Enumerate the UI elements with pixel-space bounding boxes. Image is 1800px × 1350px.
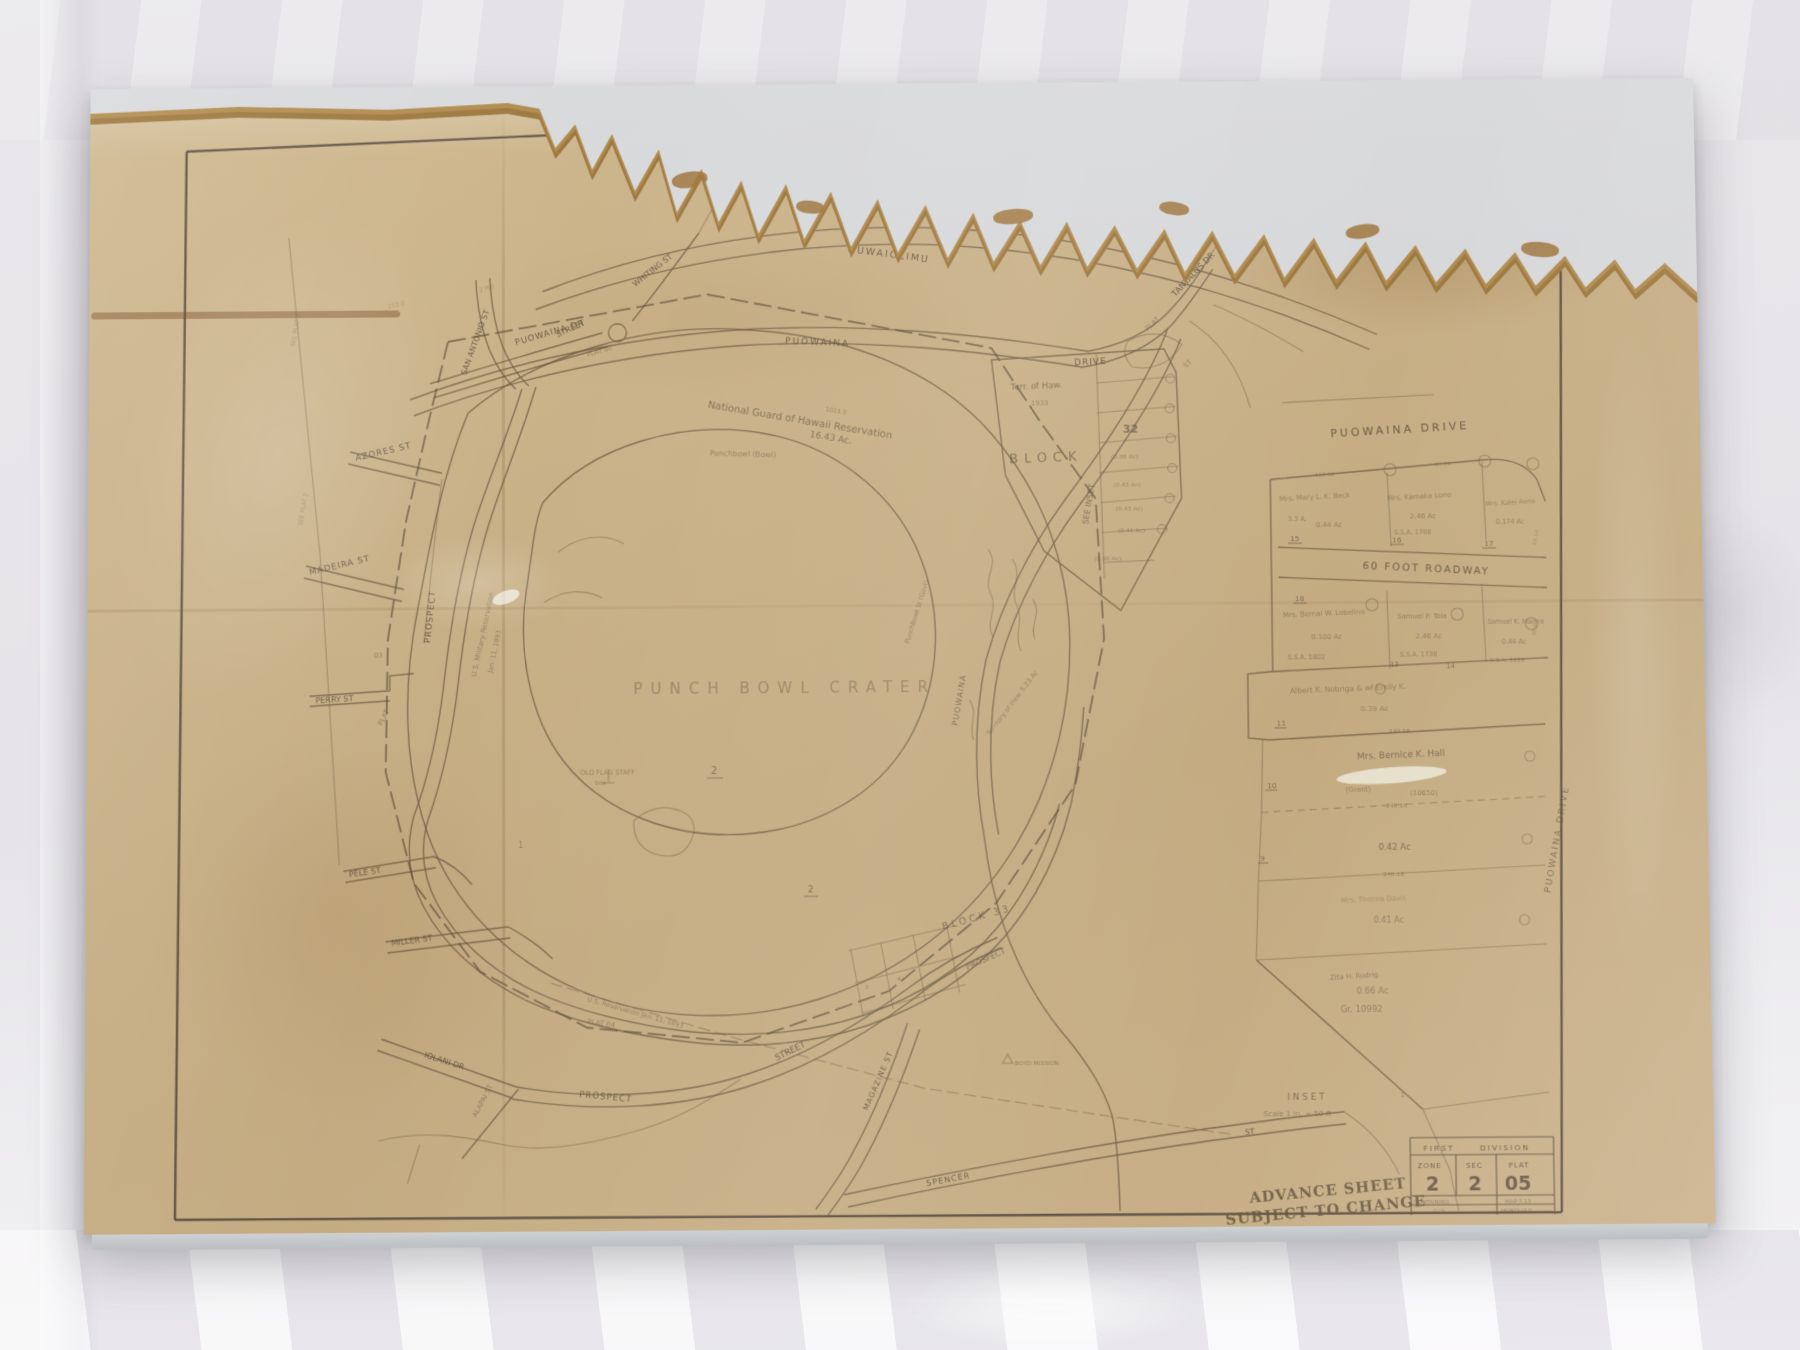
inset-p10-l3: (10650) [1410, 789, 1438, 797]
advance-sheet-stamp: ADVANCE SHEET SUBJECT TO CHANGE [1223, 1173, 1427, 1229]
street-label-drive: DRIVE [1074, 357, 1107, 368]
titleblock-sec-value: 2 [1468, 1173, 1482, 1196]
acreage-1: (0.38 Ac) [1111, 453, 1138, 460]
inset-p18-name: Mrs. Bernal W. Lobelino [1283, 608, 1365, 619]
inset-p14-l2: 0.44 Ac [1502, 638, 1527, 646]
parcel-num-3: 3 [865, 984, 869, 991]
inset-p16-l2: 2.46 Ac [1410, 512, 1437, 520]
white-correction-smudge [1336, 763, 1447, 788]
inset-p11-num: 11 [1276, 719, 1286, 728]
inset-p10-l2: (Grant) [1346, 785, 1372, 793]
inset-p16-name: Mrs. Kamaka Lono [1387, 491, 1451, 503]
inset-p14-l3: S.S.A. 1139 [1490, 657, 1525, 664]
margin-note-see-plat-2: SEE PLAT 2 [297, 492, 310, 526]
inset-p14-num: 14 [1446, 662, 1456, 670]
acreage-2: (0.43 Ac) [1113, 481, 1140, 488]
titleblock-map-ref: MAP 7.13 [1505, 1199, 1532, 1205]
street-label-spencer-st: ST [1245, 1126, 1256, 1136]
titleblock-division: DIVISION [1480, 1143, 1530, 1153]
inset-p15-l2: 3.3 A. [1288, 515, 1307, 523]
photo-of-plat-map: AUWAIOLIMU PUOWAINA DRIVE PUOWAINA DR WH… [0, 0, 1800, 1350]
inset-meas-a: 122.18 [1315, 472, 1335, 479]
us-military-line2: Jan. 11, 1893 [486, 629, 503, 674]
acreage-4: (0.41 Ac) [1118, 527, 1145, 534]
street-label-prospect-south: PROSPECT [579, 1089, 633, 1104]
acreage-3: (0.43 Ac) [1116, 505, 1143, 512]
parcel-num-2: 2 [711, 766, 717, 777]
measurement-2760: 2760 [479, 283, 496, 294]
inset-p13-name: Samuel P. Tola [1397, 612, 1447, 620]
inset-header-puowaina-drive: PUOWAINA DRIVE [1330, 419, 1470, 440]
see-inset-note: SEE INSET [1081, 483, 1097, 525]
inset-p10-meas: 240.18 [1386, 802, 1407, 809]
national-guard-line1: National Guard of Hawaii Reservation [707, 400, 893, 442]
titleblock-row5b: HONOLULU [1501, 1208, 1532, 1214]
street-label-puowaina-east: PUOWAINA [951, 674, 969, 727]
inset-p11-meas: 240.18 [1389, 728, 1410, 735]
inset-p13-l3: S.S.A. 1738 [1400, 650, 1438, 658]
punchbowl-bowl-label: Punchbowl (Bowl) [710, 448, 777, 459]
inset-p18-l3: S.S.A. 1802 [1288, 653, 1326, 661]
street-label-magazine: MAGAZINE ST [861, 1050, 895, 1112]
titleblock-zone-header: ZONE [1418, 1162, 1442, 1170]
inset-p18-num: 18 [1295, 594, 1305, 603]
fabric-blossom-3 [900, 1260, 1200, 1350]
inset-p15-name: Mrs. Mary L. K. Beck [1279, 491, 1351, 503]
titleblock-first: FIRST [1423, 1144, 1455, 1153]
torn-chip [1159, 200, 1190, 217]
inset-caption-line2: Scale 1 in. = 50 ft [1263, 1109, 1331, 1119]
parcel-num-4: 4 [897, 976, 901, 983]
punchbowl-st-label: Punchbowl St (Govt) [903, 579, 931, 645]
inset-p13-l2: 2.46 Ac [1415, 632, 1442, 640]
inset-p10-num: 10 [1267, 781, 1277, 790]
torn-chip [1521, 241, 1560, 259]
inset-tri-num: 1 [1400, 1091, 1404, 1099]
terr-of-haw-line1: Terr. of Haw. [1009, 380, 1062, 392]
inset-p9-meas: 240.18 [1383, 871, 1404, 878]
inset-tri-grant: Gr. 10992 [1341, 1004, 1383, 1014]
inset-meas-c: 66.14 [1532, 529, 1540, 546]
inset-p10-name: Mrs. Bernice K. Hall [1357, 749, 1445, 763]
street-label-tantalus-st: ST [1182, 358, 1194, 370]
street-label-prospect-west: PROSPECT [422, 590, 438, 644]
old-flag-staff-line1: OLD FLAG STAFF [580, 768, 635, 776]
measurement-212: 212.0 [387, 300, 405, 311]
inset-meas-b: 87.64 [1435, 461, 1452, 468]
measurement-1023: 1023.9 [825, 406, 847, 416]
inset-meas-d: 98.6 [1532, 622, 1540, 636]
inset-p9-l2: 0.42 Ac [1378, 842, 1411, 852]
block-word: BLOCK [1009, 449, 1083, 467]
titleblock-sec-header: SEC [1466, 1162, 1483, 1170]
inset-p15-l3: 0.44 Ac [1316, 521, 1343, 529]
inset-p16-num: 16 [1392, 535, 1402, 544]
block-33-parcels [848, 926, 965, 1016]
inset-p17-name: Mrs. Kalei Aona [1485, 497, 1535, 508]
trig-station-label: BOYD MISSION [1015, 1060, 1060, 1067]
torn-chip [796, 199, 825, 214]
street-label-miller: MILLER ST [391, 933, 433, 947]
torn-chip [993, 207, 1034, 225]
acreage-5: (0.90 Ac) [1094, 555, 1121, 562]
inset-p11-l2: 0.39 Ac [1360, 704, 1388, 713]
block-32-number: 32 [1123, 423, 1138, 436]
inset-tri-ac: 0.66 Ac [1356, 985, 1389, 995]
parcel-num-2b: 2 [808, 885, 814, 895]
margin-note-see-plat-1: SEE PLAT 2 [290, 313, 303, 347]
inset-p8-l2: 0.41 Ac [1374, 915, 1404, 924]
inset-p13-num: 13 [1390, 661, 1399, 669]
inset-60ft-roadway: 60 FOOT ROADWAY [1362, 561, 1490, 578]
street-label-madeira: MADEIRA ST [308, 553, 371, 577]
titleblock-plat-header: PLAT [1508, 1161, 1529, 1169]
plat-note-03: PLAT [376, 708, 391, 727]
inset-p17-l2: 0.174 Ac [1496, 518, 1525, 526]
inset-drive-vertical: PUOWAINA DRIVE [1543, 785, 1572, 894]
old-flag-staff-line2: Site [595, 780, 607, 787]
parcel-num-1: 1 [518, 841, 523, 850]
street-label-auwaiolimu: AUWAIOLIMU [848, 244, 931, 266]
crater-title: PUNCH BOWL CRATER [633, 678, 936, 698]
titleblock-row5a: ALIN [1432, 1209, 1445, 1215]
inset-p9-num: 9 [1260, 854, 1265, 863]
inset-tri-name: Zita H. Rodrig. [1330, 971, 1381, 982]
titleblock-zone-value: 2 [1426, 1173, 1440, 1196]
street-label-puowaina: PUOWAINA [785, 337, 850, 350]
terr-of-haw-line2: 1933 [1031, 399, 1049, 407]
inset-caption-line1: INSET [1287, 1091, 1327, 1101]
inset-p17-num: 17 [1484, 539, 1494, 548]
inset-p18-l2: 0.100 Ac [1311, 633, 1342, 641]
inset-p8-name: Mrs. Thelma Davis [1341, 894, 1407, 905]
plat-note-03-num: 03 [374, 652, 383, 660]
map-board: AUWAIOLIMU PUOWAINA DRIVE PUOWAINA DR WH… [84, 78, 1716, 1235]
inset-p11-name: Albert K. Nobriga & wf Emily K. [1290, 682, 1407, 696]
plat-note-tantalus: PLAT [1144, 315, 1162, 333]
titleblock-plat-value: 05 [1505, 1172, 1532, 1195]
inset-p15-num: 15 [1290, 534, 1300, 543]
torn-chip [1345, 222, 1380, 240]
